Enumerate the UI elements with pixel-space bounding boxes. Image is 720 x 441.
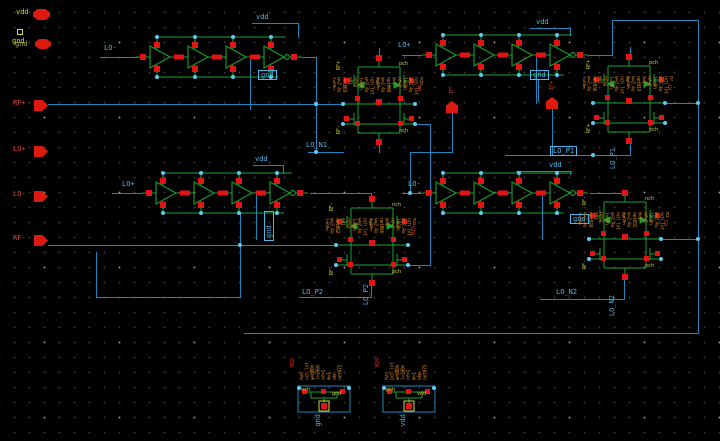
- net-label-gndB[interactable]: gnd: [530, 70, 549, 80]
- terminal-tag: pch: [649, 61, 658, 66]
- terminal-tag: RF-: [337, 125, 342, 134]
- terminal-tag: RF-: [583, 196, 588, 205]
- vdd-port-pin[interactable]: [33, 9, 50, 20]
- pin-label-rf-plus[interactable]: RF+: [13, 99, 26, 107]
- terminal-tag: RF-: [330, 266, 335, 275]
- terminal-tag: nch: [399, 129, 408, 134]
- junction-dot: [696, 237, 700, 241]
- wire-bottom-trunk[interactable]: [244, 333, 699, 334]
- rf-plus-pin[interactable]: [34, 100, 48, 111]
- net-label-chainB-in[interactable]: LO+: [398, 41, 411, 49]
- bias-device-vdd[interactable]: [382, 380, 438, 414]
- wire-chainD-in[interactable]: [402, 193, 422, 194]
- junction-dot: [238, 243, 242, 247]
- terminal-tag: nch: [645, 197, 654, 202]
- junction-dot: [591, 153, 595, 157]
- wire-v-if-minus[interactable]: [452, 113, 453, 153]
- terminal-tag: nch: [645, 264, 654, 269]
- inverter-chain-A[interactable]: [134, 30, 304, 84]
- stub-n1-bot[interactable]: [379, 145, 380, 153]
- stub-p2-bot[interactable]: [371, 286, 372, 297]
- wire-rf-minus[interactable]: [48, 245, 334, 246]
- inverter-chain-C[interactable]: [140, 166, 310, 220]
- terminal-tag: RF+: [587, 124, 592, 133]
- schematic-canvas[interactable]: vdd gnd gnd RF+ LO+ LO- RF- IF- IF+: [0, 0, 720, 441]
- instance-marker: [17, 29, 23, 35]
- net-label-lo-n2-vert[interactable]: LO_N2: [608, 295, 616, 316]
- net-label-chainA-in[interactable]: LO-: [104, 44, 117, 52]
- net-label-gndA[interactable]: gnd: [258, 70, 277, 80]
- wire-vddA[interactable]: [252, 23, 298, 24]
- junction-dot: [408, 191, 412, 195]
- bias-device-gnd[interactable]: [297, 380, 353, 414]
- wire-gndB-down[interactable]: [538, 80, 539, 102]
- wire-v-mid-left[interactable]: [240, 212, 241, 298]
- port-label-vdd[interactable]: vdd: [16, 8, 29, 16]
- if-minus-pin[interactable]: [446, 101, 458, 113]
- net-label-vddA[interactable]: vdd: [256, 13, 269, 21]
- lo-plus-pin[interactable]: [34, 146, 48, 157]
- inverter-chain-B[interactable]: [420, 28, 590, 82]
- wire-left-return[interactable]: [96, 297, 241, 298]
- wire-rf-plus[interactable]: [48, 104, 341, 105]
- wire-chainA-out[interactable]: [302, 57, 317, 58]
- terminal-tag: nch: [392, 203, 401, 208]
- pin-label-lo-minus[interactable]: LO-: [13, 190, 26, 198]
- pin-label-rf-minus[interactable]: RF-: [13, 234, 26, 242]
- if-plus-pin[interactable]: [546, 97, 558, 109]
- stub-p1-bot[interactable]: [630, 144, 631, 155]
- pin-label-if-minus[interactable]: IF-: [448, 85, 456, 94]
- device-name-tag: M7: [669, 84, 674, 90]
- junction-dot: [314, 150, 318, 154]
- inverter-chain-D[interactable]: [420, 166, 590, 220]
- rf-minus-pin[interactable]: [34, 235, 48, 246]
- junction-dot: [314, 102, 318, 106]
- terminal-tag: nch: [649, 128, 658, 133]
- net-label-dummy-vdd[interactable]: vdd: [399, 414, 407, 427]
- wire-if-minus-route[interactable]: [410, 152, 453, 153]
- net-label-chainC-in[interactable]: LO+: [122, 180, 135, 188]
- port-label-gnd-overlap: gnd: [15, 40, 28, 48]
- device-annotations: M28 nch_lvt w=800n l=100n nf=1 m=1 vbn n…: [300, 340, 350, 380]
- net-label-chainD-in[interactable]: LO-: [408, 180, 421, 188]
- pin-label-if-plus[interactable]: IF+: [548, 81, 556, 90]
- terminal-tag: RF+: [587, 60, 592, 69]
- wire-v-chainB-up[interactable]: [612, 20, 613, 56]
- net-label-vddD[interactable]: vdd: [549, 161, 562, 169]
- terminal-tag: RF+: [337, 61, 342, 70]
- pin-label-lo-plus[interactable]: LO+: [13, 145, 26, 153]
- net-label-vddC[interactable]: vdd: [255, 155, 268, 163]
- terminal-tag: pch: [386, 388, 395, 393]
- terminal-tag: RF-: [583, 260, 588, 269]
- net-label-lo-n2[interactable]: LO_N2: [556, 288, 577, 296]
- terminal-tag: vdd: [417, 392, 426, 397]
- wire-right-trunk[interactable]: [698, 20, 699, 334]
- device-name-tag: M29: [376, 358, 381, 367]
- device-name-tag: M3: [665, 220, 670, 226]
- net-label-lo-p1[interactable]: LO_P1: [550, 146, 577, 156]
- wire-loop-top[interactable]: [612, 20, 698, 21]
- net-label-dummy-gnd[interactable]: gnd: [314, 414, 322, 427]
- stub-n2-bot[interactable]: [624, 280, 625, 299]
- net-label-vddB[interactable]: vdd: [536, 18, 549, 26]
- net-label-lo-p1-vert[interactable]: LO_P1: [609, 148, 617, 169]
- terminal-tag: gnd: [332, 392, 341, 397]
- net-label-gndC[interactable]: gnd: [264, 211, 274, 241]
- device-name-tag: M15: [412, 226, 417, 235]
- device-annotations: M29 pch_lvt w=800n l=100n nf=1 m=1 vbp n…: [385, 340, 435, 380]
- terminal-tag: pch: [399, 62, 408, 67]
- wire-v-far-left[interactable]: [96, 252, 97, 298]
- terminal-tag: nch: [301, 388, 310, 393]
- lo-minus-pin[interactable]: [34, 191, 48, 202]
- device-name-tag: M28: [291, 358, 296, 367]
- gnd-port-pin[interactable]: [35, 39, 51, 49]
- junction-dot: [696, 101, 700, 105]
- terminal-tag: pch: [392, 270, 401, 275]
- net-label-lo-p2-vert[interactable]: LO_P2: [362, 284, 370, 305]
- device-name-tag: M4: [419, 85, 424, 91]
- wire-chainC-out[interactable]: [310, 193, 372, 194]
- terminal-tag: RF-: [330, 202, 335, 211]
- wire-chainA-in[interactable]: [100, 57, 138, 58]
- net-label-lo-p2[interactable]: LO_P2: [302, 288, 323, 296]
- net-label-lo-n1[interactable]: LO_N1: [306, 141, 327, 149]
- wire-chainC-in[interactable]: [112, 193, 142, 194]
